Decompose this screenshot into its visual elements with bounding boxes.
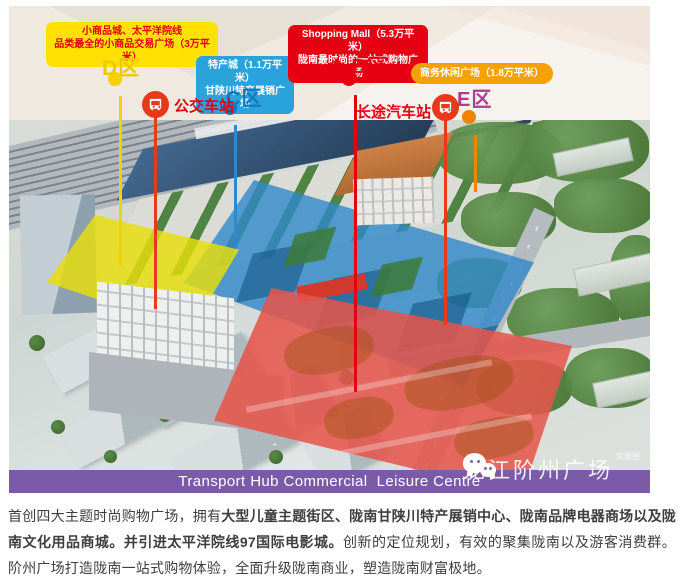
bus-icon — [432, 94, 459, 121]
leader-line-c — [234, 125, 237, 248]
zone-d-pin — [108, 72, 122, 86]
zone-e-label: E区 — [457, 83, 492, 112]
leader-line-bus-station — [154, 117, 157, 309]
callout-zone-e: 商务休闲广场（1.8万平米） — [411, 63, 553, 84]
annotation-layer: 小商品城、太平洋院线 品类最全的小商品交易广场（3万平米） 特产城（1.1万平米… — [0, 0, 683, 493]
caption-segment: 首创四大主题时尚购物广场，拥有 — [8, 508, 221, 524]
zone-e-pin — [462, 110, 476, 124]
zone-ab-label: A.B区 — [330, 50, 388, 79]
bus-icon — [142, 91, 169, 118]
callout-line: 小商品城、太平洋院线 — [82, 26, 182, 37]
leader-line-ab — [354, 95, 357, 392]
leader-line-d — [119, 96, 122, 266]
promo-image: ⌃ ⌃ ⌃ — [0, 0, 683, 580]
callout-line: 特产城（1.1万平米） — [208, 60, 282, 84]
leader-line-e — [474, 135, 477, 192]
caption-paragraph: 首创四大主题时尚购物广场，拥有大型儿童主题街区、陇南甘陕川特产展销中心、陇南品牌… — [8, 503, 676, 580]
coach-station-label: 长途汽车站 — [356, 101, 431, 122]
leader-line-coach-station — [444, 119, 447, 325]
callout-line: 商务休闲广场（1.8万平米） — [420, 68, 544, 79]
bus-station-label: 公交车站 — [174, 95, 234, 116]
zone-ab-pin — [341, 70, 357, 86]
